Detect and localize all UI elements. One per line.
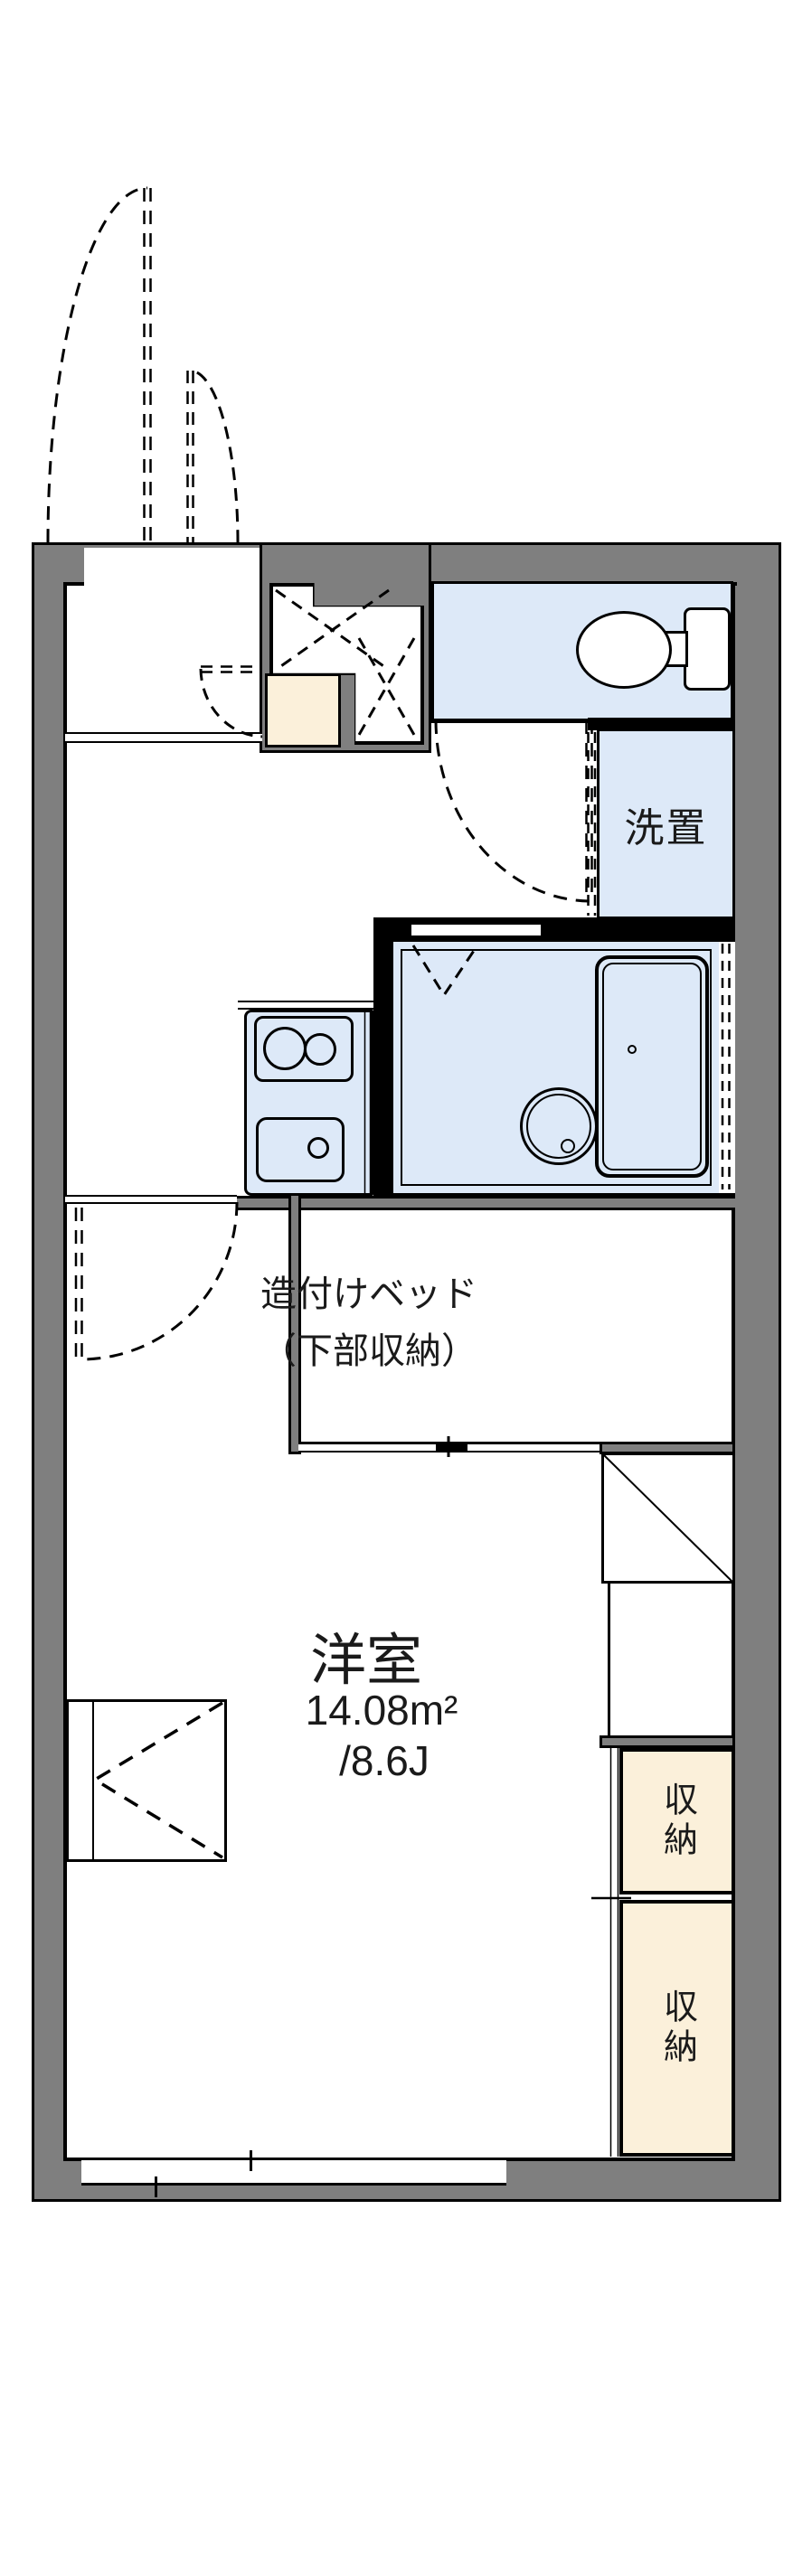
- main-room-area-jo: /8.6J: [226, 1737, 543, 1784]
- entry-sub-door-arc: [190, 371, 238, 542]
- right-column-edge: [608, 1584, 610, 1739]
- storage-top-wall: [600, 1735, 735, 1748]
- main-room-area-m2: 14.08m²: [223, 1687, 540, 1734]
- bed-label-text1: 造付けベッド: [260, 1264, 477, 1317]
- kitchen-sink: [256, 1117, 345, 1182]
- storage-upper-label: 収納: [653, 1782, 703, 1861]
- storage-lower: 収納: [619, 1900, 735, 2157]
- refrigerator-space: [601, 1453, 735, 1584]
- bath-right-gap: [719, 942, 735, 1193]
- stove-burner-small: [304, 1033, 336, 1066]
- bottom-window-tick-1: [250, 2150, 252, 2171]
- wall-edge-left: [63, 582, 67, 2161]
- storage-upper: 収納: [619, 1748, 735, 1894]
- main-room-text: 洋室: [310, 1614, 422, 1696]
- room-divider-line: [65, 732, 262, 743]
- toilet-tank: [684, 607, 731, 691]
- storage-lower-label: 収納: [653, 1988, 703, 2068]
- entry-door-arc: [48, 188, 147, 542]
- bathtub-knob: [628, 1045, 637, 1054]
- floor-plan-canvas: 洗置 造付けベッド （下部収納） 収納 収納 洋室: [0, 0, 812, 2576]
- genkan-tile: [265, 673, 341, 747]
- bottom-window-tick-2: [155, 2176, 157, 2197]
- sink-drain: [307, 1137, 329, 1159]
- toilet-bowl: [576, 611, 672, 689]
- main-room-door-opening: [65, 1195, 237, 1204]
- bed-label-line2: （下部収納）: [211, 1327, 527, 1368]
- window-box: [66, 1699, 227, 1862]
- stove-burner-large: [263, 1027, 307, 1070]
- entrance-door-opening: [84, 548, 260, 589]
- bath-door-track: [411, 923, 541, 937]
- main-room-area-m2-text: 14.08m²: [306, 1686, 458, 1735]
- main-room-area-jo-text: /8.6J: [339, 1736, 430, 1785]
- washer-room: 洗置: [597, 729, 735, 919]
- washer-room-label: 洗置: [625, 795, 708, 853]
- wash-basin-inner: [526, 1094, 591, 1159]
- kitchen-counter-top: [238, 1001, 373, 1010]
- bed-label-text2: （下部収納）: [260, 1321, 477, 1374]
- toilet-threshold: [433, 719, 591, 721]
- wash-basin-drain: [561, 1139, 575, 1153]
- bathtub-inner: [602, 963, 702, 1170]
- hall-bed-divider-wall: [237, 1196, 735, 1210]
- main-room-label: 洋室: [208, 1623, 524, 1687]
- bed-label-line1: 造付けベッド: [211, 1270, 527, 1312]
- bed-bottom-post: [436, 1442, 467, 1451]
- bottom-window: [81, 2160, 506, 2186]
